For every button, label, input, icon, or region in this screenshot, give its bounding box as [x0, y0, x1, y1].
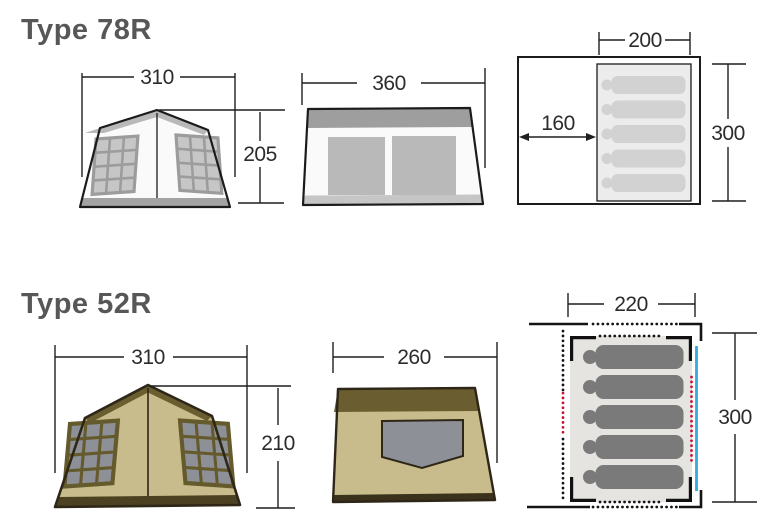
- 52r-front-width-label: 310: [131, 346, 165, 369]
- base-strip: [80, 198, 230, 207]
- sleeper-figure: [602, 125, 686, 143]
- 78r-plan-length-label: 300: [711, 122, 745, 145]
- side-window-right: [392, 136, 456, 195]
- 78r-plan-width-dimension: 200: [599, 29, 690, 55]
- type-52r-front-view: 310 210: [40, 335, 305, 515]
- 52r-side-tent-drawing: [333, 388, 495, 502]
- sleeper-figures: [583, 345, 684, 489]
- type-52r-floor-plan: 220 300: [525, 285, 768, 519]
- type-78r-front-view: 310 205: [55, 60, 300, 225]
- 52r-plan-width-label: 220: [614, 293, 648, 316]
- 52r-plan-length-label: 300: [718, 406, 752, 429]
- sleeper-figure: [602, 150, 686, 168]
- 78r-side-depth-label: 360: [372, 72, 406, 95]
- 52r-plan-width-dimension: 220: [568, 293, 695, 317]
- sleeper-figure: [583, 405, 684, 429]
- sleeper-figure: [583, 465, 684, 489]
- 52r-side-depth-label: 260: [397, 346, 431, 369]
- roof-band: [306, 108, 472, 128]
- type-78r-floor-plan: 200 160 300: [505, 25, 768, 215]
- 78r-left-window: [92, 136, 138, 194]
- 78r-plan-length-dimension: 300: [711, 64, 746, 201]
- sleeper-figure: [583, 375, 684, 399]
- sleeper-figure: [583, 345, 684, 369]
- type-52r-title: Type 52R: [21, 288, 152, 321]
- roof-band: [334, 388, 479, 412]
- 78r-plan-porch-label: 160: [541, 112, 575, 135]
- 52r-plan-length-dimension: 300: [712, 333, 757, 502]
- 52r-front-tent-drawing: [55, 385, 240, 507]
- side-window-left: [328, 137, 385, 195]
- 78r-front-height-label: 205: [243, 143, 277, 166]
- tent-spec-sheet: { "type78r": { "title": "Type 78R", "fro…: [0, 0, 768, 521]
- 78r-side-tent-drawing: [303, 108, 483, 205]
- type-52r-side-view: 260: [320, 335, 515, 510]
- type-78r-side-view: 360: [295, 60, 500, 210]
- sleeper-figure: [602, 76, 686, 94]
- sleeper-figure: [583, 435, 684, 459]
- sleeper-figure: [602, 101, 686, 119]
- sleeper-figure: [602, 174, 686, 192]
- 78r-right-window: [176, 135, 222, 193]
- 78r-plan-width-label: 200: [628, 29, 662, 52]
- 78r-front-width-label: 310: [140, 66, 174, 89]
- 52r-right-window: [180, 421, 233, 487]
- 78r-front-tent-drawing: [80, 110, 230, 207]
- type-78r-title: Type 78R: [21, 14, 152, 47]
- 52r-front-height-label: 210: [261, 432, 295, 455]
